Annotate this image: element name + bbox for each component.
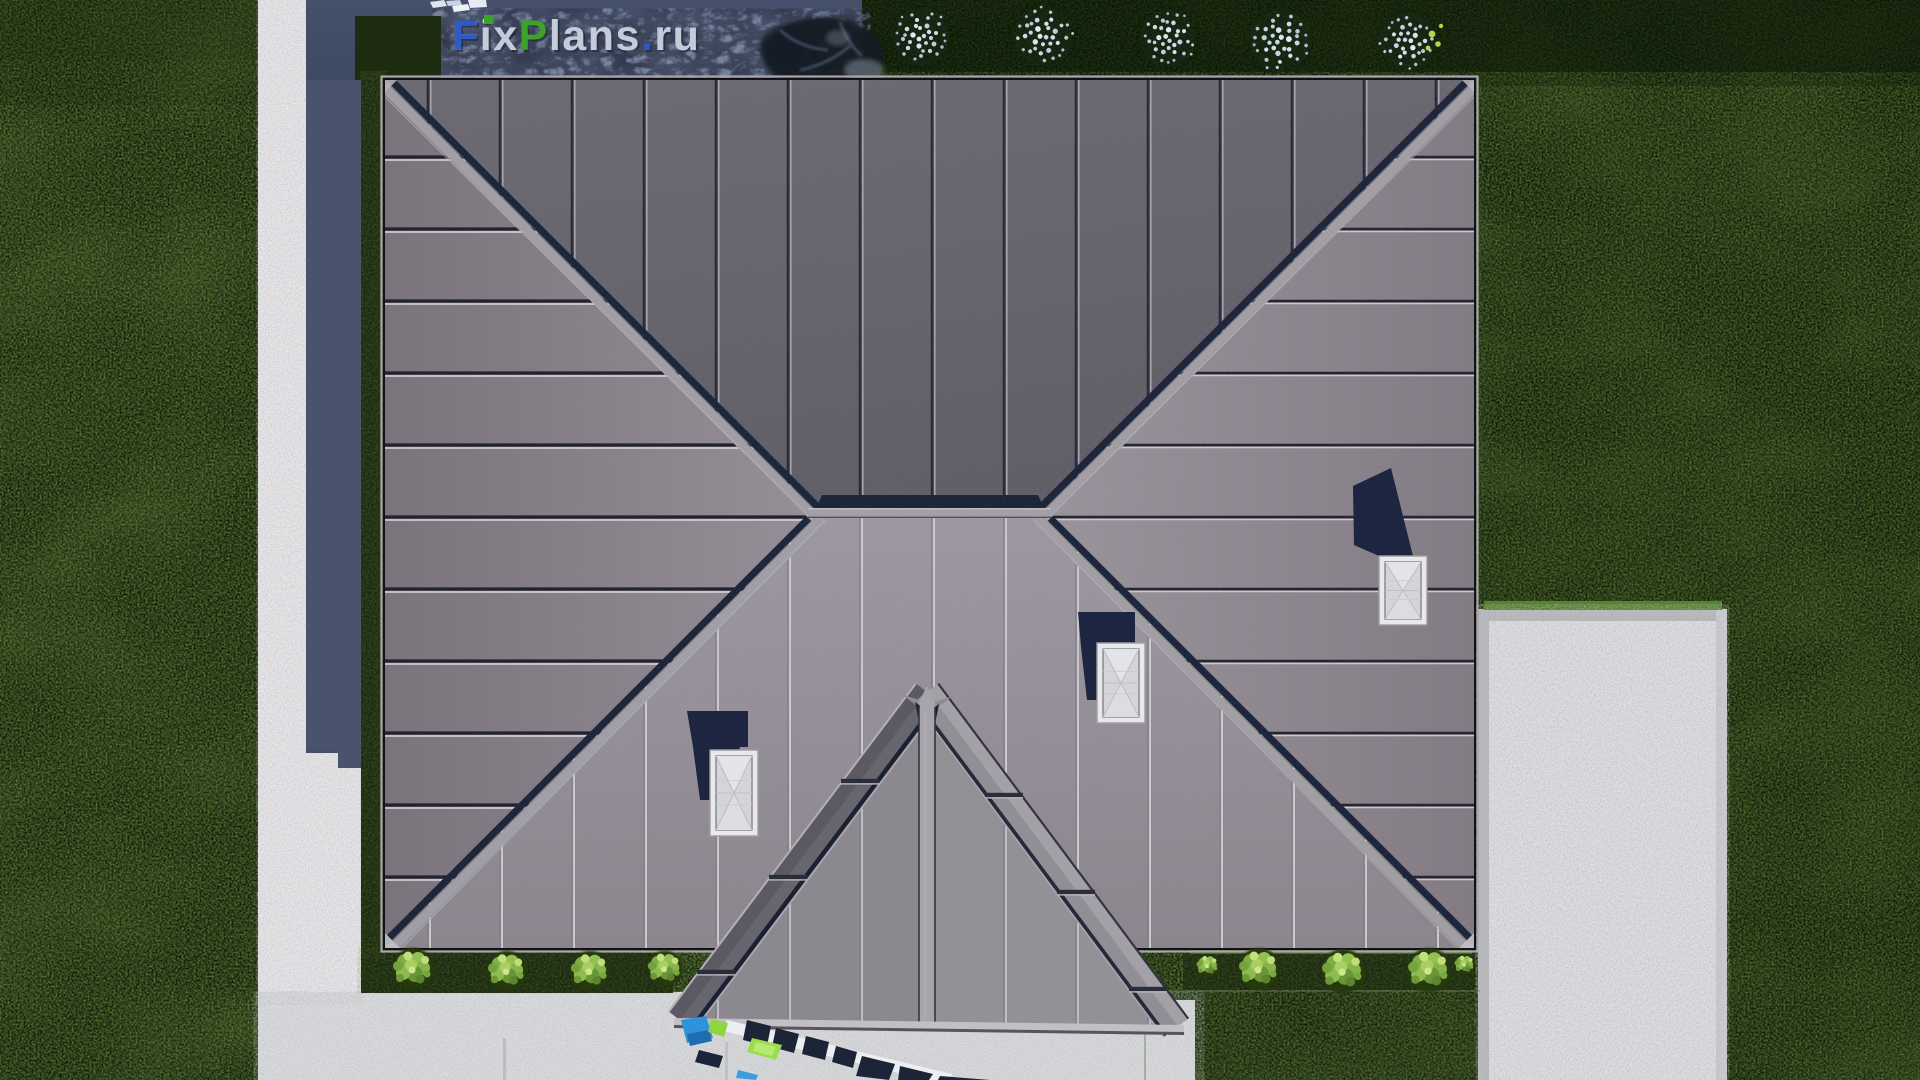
svg-text:F: F — [452, 12, 480, 60]
